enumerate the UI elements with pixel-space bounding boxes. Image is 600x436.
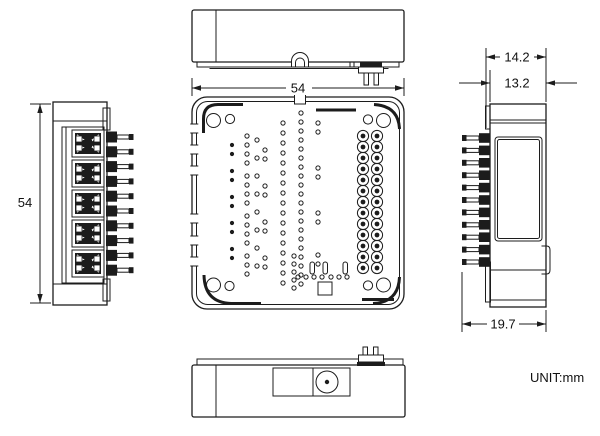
top-view [192, 10, 404, 85]
pin-shaft [466, 235, 479, 239]
header-pin-hole [375, 145, 380, 150]
technical-drawing-page: 54 [0, 0, 600, 436]
pin-base [106, 146, 117, 157]
top-connector-pins [359, 62, 384, 85]
dim-right-depth: 19.7 [462, 272, 546, 332]
pin-prong [374, 73, 379, 85]
pin-base [479, 183, 490, 193]
edge-notch [191, 214, 198, 223]
header-pin-hole [375, 211, 380, 216]
header-pin-hole [361, 189, 366, 194]
dim-left-height: 54 [18, 104, 51, 303]
connector-pin-detail [76, 265, 82, 271]
arrowhead-left [192, 85, 201, 90]
connector-center [83, 200, 92, 207]
pin-shaft [466, 161, 479, 165]
connector-center [83, 170, 92, 177]
pin-flange [359, 67, 384, 73]
connector-center [83, 140, 92, 147]
edge-notch [191, 257, 198, 266]
pin-base [106, 176, 117, 187]
pcb-hole [230, 169, 234, 173]
bottom-connector-pins [357, 347, 385, 366]
pcb-hole [230, 143, 234, 147]
header-pin-hole [361, 266, 366, 271]
header-pin-hole [375, 233, 380, 238]
connector-pin-detail [76, 256, 82, 262]
bottom-body-outline [192, 365, 405, 417]
pin-shaft [117, 268, 129, 272]
connector-pin-detail [76, 235, 82, 241]
right-bottom-lines [490, 270, 546, 300]
dim-left-height-label: 54 [18, 195, 32, 210]
front-view [191, 96, 404, 310]
connector-pin-detail [76, 136, 82, 142]
header-pin-hole [375, 244, 380, 249]
header-pin-hole [375, 222, 380, 227]
pin-shaft [466, 223, 479, 227]
pin-tip [462, 160, 467, 166]
pin-tip [129, 193, 134, 199]
left-side-view [53, 102, 134, 305]
pin-base [106, 191, 117, 202]
header-pin-hole [361, 178, 366, 183]
pin-base [479, 208, 490, 218]
edge-notch [191, 145, 198, 154]
pin-shaft [117, 253, 129, 257]
connector-pin-detail [94, 205, 100, 211]
pin-shaft [117, 224, 129, 228]
dim-lines [30, 104, 51, 303]
header-pin-hole [361, 211, 366, 216]
pin-shaft [466, 210, 479, 214]
header-pin-hole [361, 134, 366, 139]
header-pin-hole [361, 156, 366, 161]
unit-label: UNIT:mm [530, 370, 584, 385]
connector-pin-detail [94, 235, 100, 241]
pin-base [479, 232, 490, 242]
header-pin-hole [375, 255, 380, 260]
header-pin-hole [361, 167, 366, 172]
pcb-hole [230, 178, 234, 182]
left-pins [106, 132, 134, 276]
pcb-hole [230, 230, 234, 234]
header-pin-hole [361, 233, 366, 238]
pin-tip [129, 252, 134, 258]
arrowhead-left [462, 321, 471, 326]
right-panel-inner [498, 140, 540, 239]
pin-tip [462, 222, 467, 228]
right-panel-outline [495, 137, 542, 241]
top-lip-ticks [350, 62, 354, 67]
pin-tip [462, 147, 467, 153]
header-pin-hole [375, 167, 380, 172]
dim-right-body-width: 13.2 [459, 70, 577, 102]
connector-pin-detail [94, 136, 100, 142]
pin-tip [129, 134, 134, 140]
bottom-view [192, 347, 405, 417]
dim-top-width-label: 54 [291, 81, 305, 96]
header-pin-hole [375, 156, 380, 161]
pin-tip [129, 208, 134, 214]
pin-shaft [117, 179, 129, 183]
top-notch-mask [295, 96, 306, 105]
connector-pin-detail [94, 196, 100, 202]
dim-right-body-label: 13.2 [504, 76, 529, 91]
pin-shaft [117, 150, 129, 154]
arrowhead-down [37, 294, 42, 303]
top-notch [295, 96, 306, 105]
arrowhead-left-pointing [546, 80, 555, 85]
pcb-hole [230, 221, 234, 225]
arrowhead-up [37, 104, 42, 113]
pin-base [479, 170, 490, 180]
connector-pin-detail [94, 166, 100, 172]
edge-notch [191, 166, 198, 175]
pcb-hole [230, 256, 234, 260]
pin-base [106, 235, 117, 246]
pin-shaft [466, 248, 479, 252]
connector-pin-detail [76, 205, 82, 211]
pin-base [479, 195, 490, 205]
pin-base [360, 62, 382, 67]
pin-tip [129, 178, 134, 184]
drawing-canvas: 54 [0, 0, 600, 436]
pin-shaft [117, 194, 129, 198]
pin-shaft [466, 136, 479, 140]
pin-shaft [466, 148, 479, 152]
header-pin-hole [375, 134, 380, 139]
pin-tip [462, 247, 467, 253]
connector-pin-detail [76, 196, 82, 202]
pin-tip [462, 197, 467, 203]
pin-base [479, 133, 490, 143]
edge-notch [191, 236, 198, 245]
connector-pin-detail [76, 226, 82, 232]
pin-shaft [466, 173, 479, 177]
left-connectors [72, 130, 104, 277]
pcb-hole [230, 152, 234, 156]
dim-top-width: 54 [192, 78, 404, 96]
connector-pin-detail [76, 175, 82, 181]
pin-tip [129, 223, 134, 229]
connector-center [83, 260, 92, 267]
pin-tip [129, 149, 134, 155]
header-pin-hole [375, 266, 380, 271]
pin-base [479, 245, 490, 255]
pin-base [106, 220, 117, 231]
connector-pin-detail [76, 166, 82, 172]
pin-base [479, 220, 490, 230]
pin-shaft [466, 198, 479, 202]
dc-jack-center [325, 380, 329, 384]
connector-pin-detail [94, 226, 100, 232]
pin-base [106, 250, 117, 261]
arrowhead-left [486, 54, 495, 59]
header-pin-hole [375, 200, 380, 205]
top-button-dome [292, 53, 309, 68]
pin-tip [129, 238, 134, 244]
case-outline [192, 97, 404, 309]
connector-pin-detail [94, 265, 100, 271]
pin-flange [359, 355, 384, 362]
dim-right-depth-label: 19.7 [490, 317, 515, 332]
right-pins [462, 133, 490, 267]
pin-shaft [466, 186, 479, 190]
pin-base [106, 265, 117, 276]
pin-shaft [117, 165, 129, 169]
pin-tip [462, 135, 467, 141]
pcb-hole [230, 204, 234, 208]
pin-tip [462, 259, 467, 265]
pin-tip [129, 164, 134, 170]
header-pin-hole [361, 255, 366, 260]
pin-base [106, 206, 117, 217]
edge-notch [191, 124, 198, 133]
pin-prong [364, 73, 369, 85]
arrowhead-right [395, 85, 404, 90]
right-cap-lines [490, 120, 546, 123]
pin-shaft [117, 135, 129, 139]
connector-center [83, 230, 92, 237]
connector-pin-detail [94, 256, 100, 262]
arrowhead-right [537, 321, 546, 326]
right-body-outline [490, 104, 546, 307]
pin-shaft [117, 239, 129, 243]
pin-base [357, 362, 385, 366]
connector-pin-detail [94, 145, 100, 151]
pin-shaft [117, 209, 129, 213]
header-pin-hole [375, 178, 380, 183]
arrowhead-right [537, 54, 546, 59]
pin-base [479, 158, 490, 168]
header-pin-hole [361, 145, 366, 150]
right-side-view [462, 104, 550, 307]
header-pin-hole [361, 200, 366, 205]
pin-tip [129, 267, 134, 273]
dim-right-overall-label: 14.2 [504, 50, 529, 65]
header-pin-hole [361, 244, 366, 249]
pcb-hole [230, 247, 234, 251]
header-pin-hole [361, 222, 366, 227]
pin-tip [462, 185, 467, 191]
pin-shaft [466, 260, 479, 264]
connector-pin-detail [76, 145, 82, 151]
pin-tip [462, 172, 467, 178]
pin-base [106, 132, 117, 143]
pin-tip [462, 234, 467, 240]
pcb-hole [230, 195, 234, 199]
pin-base [479, 146, 490, 156]
pin-tip [462, 209, 467, 215]
header-pin-hole [375, 189, 380, 194]
connector-pin-detail [94, 175, 100, 181]
pin-base [106, 161, 117, 172]
